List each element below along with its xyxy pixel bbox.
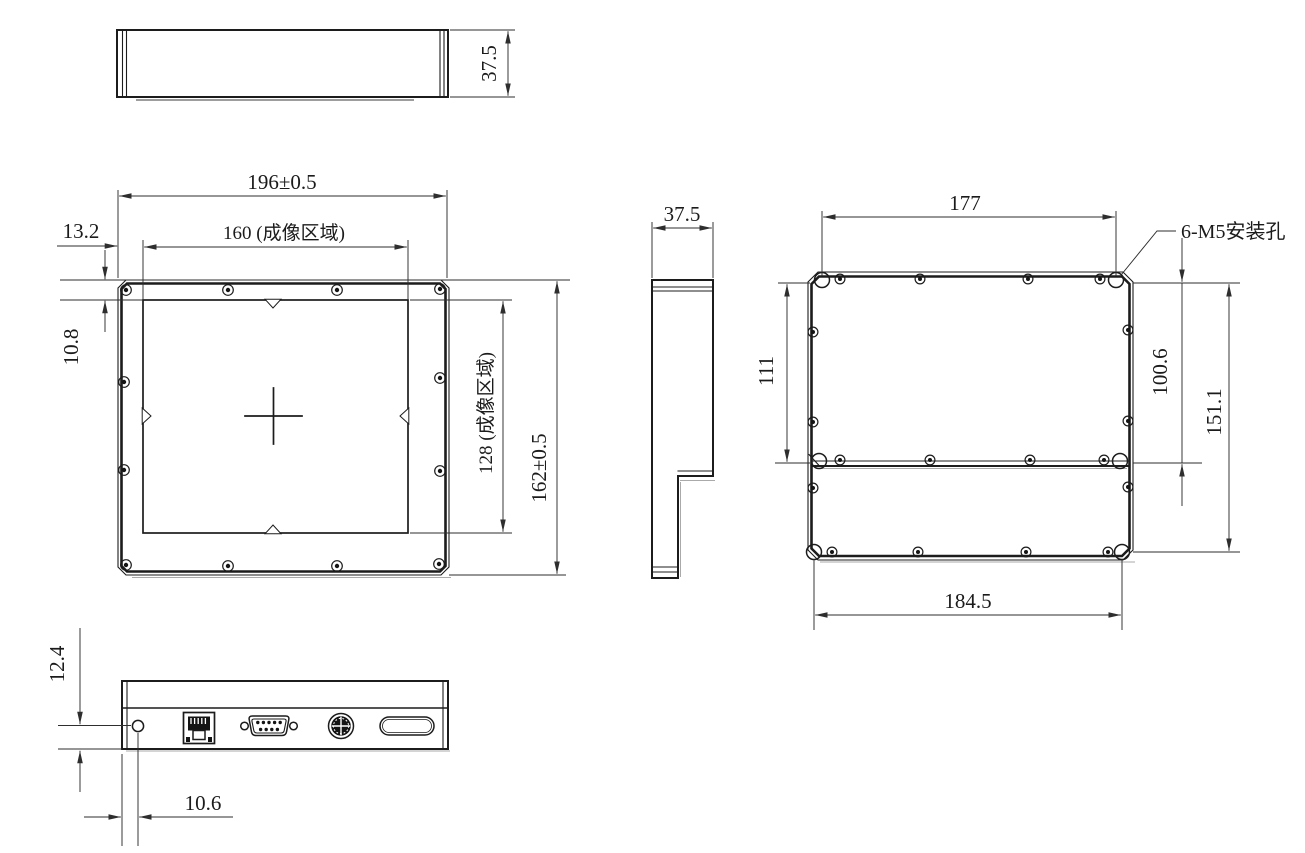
screw [808,417,818,427]
m5-mounting-holes [807,273,1130,560]
rj45-port [184,713,215,744]
rear-extension-lines [775,211,1240,630]
dim-label: 162±0.5 [527,433,551,502]
dim-overall-height: 162±0.5 [527,281,557,574]
dim-top-height: 37.5 [450,30,515,97]
top-view-outline [117,30,448,97]
rear-screws [808,274,1133,557]
screw [223,285,234,296]
screw [1123,325,1133,335]
dim-overall-width: 196±0.5 [119,170,446,196]
screw [223,561,234,572]
technical-drawing: 37.5 [0,0,1305,853]
top-view-edge-lines [123,30,445,97]
dim-top-offset: 10.8 [59,250,105,365]
dim-label: 151.1 [1202,388,1226,435]
bottom-view-outline [122,681,448,749]
mounting-hole-callout: 6-M5安装孔 [1122,220,1286,275]
screw [1123,482,1133,492]
dim-label: 13.2 [63,219,100,243]
dim-imaging-width: 160 (成像区域) [144,222,407,247]
rear-outline-outer [808,272,1133,560]
screw [1123,416,1133,426]
bottom-extension-lines [58,726,138,847]
bottom-view-connectors: 12.4 10.6 [45,628,450,846]
dim-label: 196±0.5 [247,170,316,194]
dim-label: 37.5 [664,202,701,226]
screw [435,373,446,384]
dim-label: 10.6 [185,791,222,815]
dim-label: 10.8 [59,329,83,366]
screw [435,466,446,477]
db9-pins [256,721,282,731]
dim-label: 128 (成像区域) [475,352,497,474]
side-view-outline [652,280,713,578]
power-connector [329,714,354,739]
rear-outline-inner [812,277,1130,557]
leader-line [1122,231,1177,275]
dim-label: 184.5 [944,589,991,613]
dim-label: 12.4 [45,645,69,682]
dim-side-thickness: 37.5 [652,202,713,278]
dim-rear-hole-span-upper: 100.6 [1148,238,1182,506]
db9-serial-port [241,716,298,736]
top-view: 37.5 [117,30,515,100]
front-screws [119,284,446,572]
rear-view: 177 6-M5安装孔 111 100.6 151.1 184.5 [754,191,1285,630]
dim-imaging-height: 128 (成像区域) [475,301,503,532]
dim-rear-hole-span-top: 177 [823,191,1115,217]
mounting-hole-label: 6-M5安装孔 [1181,220,1285,243]
screw [434,559,445,570]
bottom-view-edge-lines [127,681,443,749]
dim-label: 37.5 [477,45,501,82]
screw [808,483,818,493]
side-view-detail-lines [652,287,713,572]
indicator-hole [132,720,143,731]
screw [332,285,343,296]
dim-rear-upper-height: 111 [754,284,787,462]
dim-rear-hole-span-bottom: 184.5 [815,589,1121,615]
panel-outline-outer [118,280,449,575]
dim-label: 100.6 [1148,348,1172,395]
screw [332,561,343,572]
dim-connector-horizontal-offset: 10.6 [84,791,233,817]
screw [1099,455,1109,465]
screw [925,455,935,465]
dim-connector-vertical-offset: 12.4 [45,628,80,792]
screw [1025,455,1035,465]
dim-left-offset: 13.2 [57,219,117,246]
panel-outline-inner [122,284,446,572]
side-view-shadow [680,481,715,578]
rear-shadows [816,469,1135,563]
front-view: 196±0.5 160 (成像区域) 13.2 10.8 128 (成像区域) … [57,170,570,578]
dim-label: 160 (成像区域) [223,222,345,244]
side-view: 37.5 [652,202,715,578]
label-slot [380,717,434,735]
dim-label: 111 [754,356,778,386]
dim-rear-hole-span-height: 151.1 [1202,284,1229,551]
dim-label: 177 [949,191,981,215]
screw [808,327,818,337]
screw [835,455,845,465]
center-cross-mark [245,388,302,444]
